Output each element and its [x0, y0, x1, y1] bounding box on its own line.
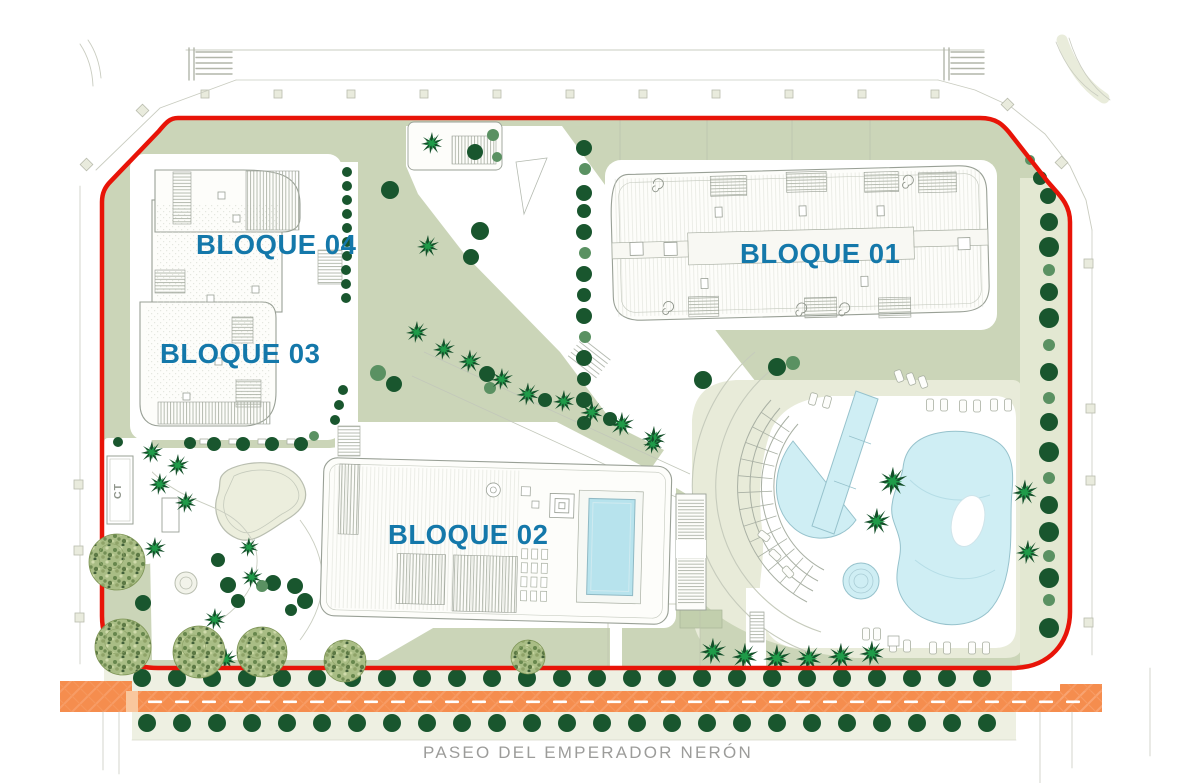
tree-icon — [577, 288, 591, 302]
lane-dash — [499, 701, 513, 704]
lane-dash — [1012, 701, 1026, 704]
tree-icon — [338, 385, 348, 395]
tree-icon — [483, 669, 501, 687]
tree-icon — [208, 714, 226, 732]
tree-icon — [1039, 237, 1059, 257]
large-tree-icon — [511, 640, 545, 674]
tree-icon — [577, 204, 591, 218]
tree-icon — [1039, 522, 1059, 542]
large-tree-icon — [95, 619, 151, 675]
tree-icon — [378, 669, 396, 687]
lane-dash — [256, 701, 270, 704]
building-block04-03 — [140, 170, 300, 426]
tree-icon — [763, 669, 781, 687]
lane-dash — [1039, 701, 1053, 704]
site-plan-page: BLOQUE 01 BLOQUE 02 BLOQUE 03 BLOQUE 04 … — [0, 0, 1200, 783]
tree-icon — [341, 279, 351, 289]
tree-icon — [1040, 363, 1058, 381]
sun-lounger-icon — [904, 640, 911, 652]
tree-icon — [973, 669, 991, 687]
tree-icon — [733, 714, 751, 732]
lane-dash — [229, 701, 243, 704]
garden-plot — [680, 610, 722, 628]
tree-icon — [467, 144, 483, 160]
tree-icon — [538, 393, 552, 407]
lane-dash — [148, 701, 162, 704]
tree-icon — [786, 356, 800, 370]
sun-lounger-icon — [1005, 399, 1012, 411]
tree-icon — [693, 669, 711, 687]
tree-icon — [523, 714, 541, 732]
tree-icon — [1043, 472, 1055, 484]
tree-icon — [313, 714, 331, 732]
tree-icon — [1040, 213, 1058, 231]
lane-dash — [337, 701, 351, 704]
lane-markings — [148, 701, 1080, 704]
sun-lounger-icon — [991, 399, 998, 411]
ramp — [676, 494, 706, 610]
lane-dash — [904, 701, 918, 704]
tree-icon — [1040, 496, 1058, 514]
tree-icon — [1043, 550, 1055, 562]
label-street-name: PASEO DEL EMPERADOR NERÓN — [423, 743, 753, 762]
large-tree-icon — [237, 627, 287, 677]
tree-icon — [1039, 568, 1059, 588]
tree-icon — [334, 400, 344, 410]
tree-icon — [348, 714, 366, 732]
lane-dash — [391, 701, 405, 704]
tree-icon — [873, 714, 891, 732]
tree-icon — [577, 416, 591, 430]
stairs-icon — [338, 426, 360, 456]
tree-icon — [1043, 339, 1055, 351]
tree-icon — [341, 293, 351, 303]
site-plan-map: BLOQUE 01 BLOQUE 02 BLOQUE 03 BLOQUE 04 … — [0, 0, 1200, 783]
tree-icon — [487, 129, 499, 141]
tree-icon — [173, 714, 191, 732]
tree-icon — [579, 247, 591, 259]
lane-dash — [310, 701, 324, 704]
tree-icon — [463, 249, 479, 265]
tree-icon — [471, 222, 489, 240]
lane-dash — [931, 701, 945, 704]
tree-icon — [386, 376, 402, 392]
lane-dash — [472, 701, 486, 704]
tree-icon — [943, 714, 961, 732]
lane-dash — [580, 701, 594, 704]
sun-lounger-icon — [863, 628, 870, 640]
tree-icon — [285, 604, 297, 616]
tree-icon — [1040, 283, 1058, 301]
lane-dash — [796, 701, 810, 704]
sun-lounger-icon — [969, 642, 976, 654]
tree-icon — [558, 714, 576, 732]
tree-icon — [113, 437, 123, 447]
tree-icon — [768, 358, 786, 376]
tree-icon — [1043, 594, 1055, 606]
label-ct: CT — [112, 483, 124, 499]
tree-icon — [1043, 264, 1055, 276]
tree-icon — [135, 595, 151, 611]
large-tree-icon — [89, 534, 145, 590]
lane-dash — [769, 701, 783, 704]
tree-icon — [342, 167, 352, 177]
play-circle — [175, 572, 197, 594]
tree-icon — [342, 181, 352, 191]
tree-icon — [728, 669, 746, 687]
large-tree-icon — [173, 626, 225, 678]
lane-dash — [850, 701, 864, 704]
tree-icon — [383, 714, 401, 732]
lane-dash — [823, 701, 837, 704]
label-bloque-01: BLOQUE 01 — [740, 238, 900, 269]
tree-icon — [297, 593, 313, 609]
large-tree-icon — [324, 640, 366, 682]
tree-icon — [698, 714, 716, 732]
tree-icon — [342, 195, 352, 205]
tree-icon — [579, 331, 591, 343]
sun-lounger-icon — [930, 642, 937, 654]
tree-icon — [798, 669, 816, 687]
tree-icon — [576, 185, 592, 201]
lane-dash — [364, 701, 378, 704]
lane-dash — [985, 701, 999, 704]
lane-dash — [283, 701, 297, 704]
tree-icon — [231, 594, 245, 608]
tree-icon — [220, 577, 236, 593]
sun-lounger-icon — [974, 400, 981, 412]
lane-dash — [634, 701, 648, 704]
tree-icon — [579, 163, 591, 175]
lane-dash — [661, 701, 675, 704]
tree-icon — [628, 714, 646, 732]
tree-icon — [663, 714, 681, 732]
tree-icon — [593, 714, 611, 732]
tree-icon — [1040, 413, 1058, 431]
tree-icon — [768, 714, 786, 732]
utility-box — [888, 636, 899, 646]
tree-icon — [623, 669, 641, 687]
lane-dash — [688, 701, 702, 704]
tree-icon — [938, 669, 956, 687]
tree-icon — [978, 714, 996, 732]
tree-icon — [256, 580, 268, 592]
tree-icon — [287, 578, 303, 594]
tree-icon — [138, 714, 156, 732]
label-bloque-04: BLOQUE 04 — [196, 229, 357, 260]
tree-icon — [576, 392, 592, 408]
stairs-icon — [750, 612, 764, 642]
lane-dash — [418, 701, 432, 704]
lane-dash — [175, 701, 189, 704]
tree-icon — [576, 224, 592, 240]
tree-icon — [868, 669, 886, 687]
tree-icon — [278, 714, 296, 732]
lane-dash — [202, 701, 216, 704]
tree-icon — [903, 669, 921, 687]
sun-lounger-icon — [983, 642, 990, 654]
tree-icon — [833, 669, 851, 687]
tree-icon — [1039, 442, 1059, 462]
lane-dash — [715, 701, 729, 704]
sun-lounger-icon — [941, 399, 948, 411]
lane-dash — [958, 701, 972, 704]
tree-icon — [381, 181, 399, 199]
tree-icon — [448, 669, 466, 687]
tree-icon — [576, 308, 592, 324]
spa-pool — [843, 563, 879, 599]
tree-icon — [1039, 308, 1059, 328]
tree-icon — [236, 437, 250, 451]
tree-icon — [370, 365, 386, 381]
tree-icon — [418, 714, 436, 732]
tree-icon — [658, 669, 676, 687]
tree-icon — [694, 371, 712, 389]
tree-icon — [330, 415, 340, 425]
tree-icon — [576, 266, 592, 282]
tree-icon — [1039, 618, 1059, 638]
label-bloque-02: BLOQUE 02 — [388, 519, 548, 550]
sun-lounger-icon — [874, 628, 881, 640]
sun-lounger-icon — [960, 400, 967, 412]
tree-icon — [838, 714, 856, 732]
roof-court — [550, 493, 575, 518]
tree-icon — [577, 372, 591, 386]
tree-icon — [492, 152, 502, 162]
lane-dash — [742, 701, 756, 704]
tree-icon — [294, 437, 308, 451]
tree-icon — [243, 714, 261, 732]
tree-icon — [308, 669, 326, 687]
tree-icon — [588, 669, 606, 687]
tree-icon — [576, 140, 592, 156]
lane-dash — [526, 701, 540, 704]
lane-dash — [877, 701, 891, 704]
tree-icon — [309, 431, 319, 441]
tree-icon — [1043, 392, 1055, 404]
tree-icon — [803, 714, 821, 732]
lane-dash — [445, 701, 459, 704]
tree-icon — [342, 209, 352, 219]
lane-dash — [1066, 701, 1080, 704]
tree-icon — [553, 669, 571, 687]
tree-icon — [908, 714, 926, 732]
label-bloque-03: BLOQUE 03 — [160, 338, 320, 369]
lane-dash — [607, 701, 621, 704]
tree-icon — [488, 714, 506, 732]
tree-icon — [576, 350, 592, 366]
lane-dash — [553, 701, 567, 704]
tree-icon — [453, 714, 471, 732]
rooftop-pool — [587, 498, 635, 595]
tree-icon — [211, 553, 225, 567]
tree-icon — [413, 669, 431, 687]
entrance-structure — [408, 122, 502, 170]
sun-lounger-icon — [927, 399, 934, 411]
sun-lounger-icon — [944, 642, 951, 654]
tree-icon — [341, 265, 351, 275]
tree-icon — [207, 437, 221, 451]
tree-icon — [484, 382, 496, 394]
tree-icon — [265, 437, 279, 451]
tree-icon — [184, 437, 196, 449]
